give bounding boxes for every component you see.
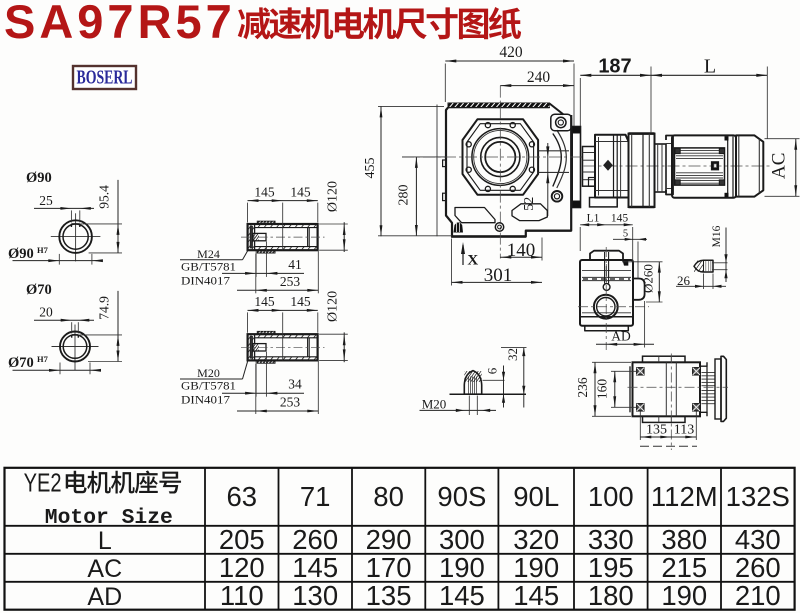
- svg-text:71: 71: [300, 481, 331, 512]
- svg-text:145: 145: [513, 580, 559, 611]
- svg-text:Ø90: Ø90: [8, 246, 34, 262]
- svg-text:L: L: [98, 527, 112, 555]
- svg-text:41: 41: [288, 257, 302, 272]
- svg-text:AC: AC: [768, 153, 789, 179]
- svg-text:253: 253: [280, 274, 301, 289]
- svg-text:74.9: 74.9: [97, 296, 112, 320]
- svg-text:L1: L1: [587, 213, 600, 225]
- svg-text:145: 145: [254, 294, 275, 309]
- svg-text:253: 253: [280, 395, 301, 410]
- svg-text:Ø120: Ø120: [326, 291, 341, 322]
- svg-text:L: L: [704, 56, 716, 78]
- svg-text:AC: AC: [87, 555, 122, 583]
- svg-text:H7: H7: [37, 354, 49, 364]
- svg-text:130: 130: [292, 580, 338, 611]
- svg-text:132S: 132S: [726, 481, 790, 512]
- svg-text:145: 145: [254, 184, 275, 199]
- svg-text:H7: H7: [37, 245, 49, 255]
- svg-text:455: 455: [363, 158, 378, 179]
- svg-text:140: 140: [507, 240, 536, 261]
- svg-text:240: 240: [527, 69, 551, 86]
- svg-text:120: 120: [219, 552, 265, 583]
- svg-text:Ø70: Ø70: [8, 355, 34, 371]
- svg-text:34: 34: [288, 377, 302, 392]
- svg-text:M20: M20: [422, 397, 447, 412]
- svg-text:190: 190: [661, 580, 707, 611]
- svg-text:DIN4017: DIN4017: [181, 273, 230, 287]
- svg-text:YE2: YE2: [24, 468, 62, 498]
- svg-text:145: 145: [290, 294, 311, 309]
- svg-text:260: 260: [292, 524, 338, 555]
- svg-text:90L: 90L: [513, 481, 559, 512]
- svg-text:190: 190: [439, 552, 485, 583]
- svg-text:330: 330: [588, 524, 634, 555]
- svg-text:X: X: [467, 253, 478, 269]
- svg-text:112M: 112M: [651, 481, 718, 512]
- svg-text:Ø70: Ø70: [26, 282, 52, 298]
- svg-text:290: 290: [366, 524, 412, 555]
- svg-text:32: 32: [505, 348, 520, 361]
- svg-text:145: 145: [439, 580, 485, 611]
- svg-text:301: 301: [484, 265, 513, 286]
- svg-text:205: 205: [219, 524, 265, 555]
- svg-text:195: 195: [588, 552, 634, 583]
- svg-text:AD: AD: [611, 329, 631, 344]
- svg-text:SA97R57: SA97R57: [4, 0, 236, 48]
- svg-text:95.4: 95.4: [97, 185, 112, 209]
- svg-text:260: 260: [735, 552, 781, 583]
- svg-text:100: 100: [588, 481, 634, 512]
- svg-text:90S: 90S: [437, 481, 486, 512]
- svg-text:190: 190: [513, 552, 559, 583]
- svg-text:GB/T5781: GB/T5781: [181, 379, 236, 393]
- svg-text:113: 113: [674, 422, 694, 437]
- svg-text:63: 63: [227, 481, 258, 512]
- svg-text:26: 26: [677, 273, 691, 288]
- svg-text:GB/T5781: GB/T5781: [181, 259, 236, 273]
- svg-text:DIN4017: DIN4017: [181, 393, 230, 407]
- svg-text:187: 187: [598, 55, 631, 77]
- svg-text:215: 215: [661, 552, 707, 583]
- svg-text:135: 135: [366, 580, 412, 611]
- svg-text:280: 280: [396, 185, 411, 206]
- svg-text:300: 300: [439, 524, 485, 555]
- svg-text:170: 170: [366, 552, 412, 583]
- svg-text:180: 180: [588, 580, 634, 611]
- svg-text:BOSERL: BOSERL: [77, 68, 133, 89]
- svg-text:210: 210: [735, 580, 781, 611]
- svg-text:430: 430: [735, 524, 781, 555]
- svg-text:Ø120: Ø120: [326, 181, 341, 212]
- svg-text:AD: AD: [87, 583, 122, 611]
- svg-text:80: 80: [373, 481, 404, 512]
- svg-text:135: 135: [646, 422, 667, 437]
- svg-text:M16: M16: [711, 225, 723, 247]
- svg-text:145: 145: [290, 184, 311, 199]
- svg-text:25: 25: [39, 193, 53, 208]
- svg-text:145: 145: [611, 213, 629, 225]
- svg-text:110: 110: [220, 580, 264, 611]
- svg-text:20: 20: [39, 305, 53, 320]
- svg-text:145: 145: [292, 552, 338, 583]
- svg-text:420: 420: [499, 44, 523, 61]
- svg-text:160: 160: [595, 379, 610, 400]
- svg-text:236: 236: [575, 377, 590, 398]
- svg-text:320: 320: [513, 524, 559, 555]
- svg-text:Ø90: Ø90: [26, 170, 52, 186]
- svg-text:5: 5: [623, 228, 628, 239]
- svg-text:Ø260: Ø260: [640, 264, 655, 293]
- svg-text:6: 6: [485, 367, 500, 374]
- svg-text:380: 380: [661, 524, 707, 555]
